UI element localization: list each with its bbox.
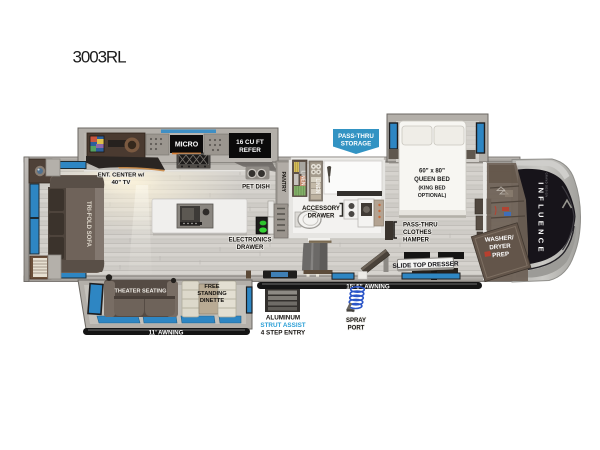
svg-text:DINETTE: DINETTE bbox=[200, 298, 225, 304]
svg-text:STORAGE: STORAGE bbox=[341, 140, 371, 147]
svg-text:PORT: PORT bbox=[348, 326, 365, 332]
svg-text:STANDING: STANDING bbox=[197, 291, 227, 297]
svg-text:SPRAY: SPRAY bbox=[346, 318, 366, 324]
svg-text:PET DISH: PET DISH bbox=[242, 185, 270, 191]
svg-text:HAMPER: HAMPER bbox=[403, 238, 430, 244]
svg-text:ENT. CENTER w/: ENT. CENTER w/ bbox=[98, 173, 145, 179]
svg-text:STRUT ASSIST: STRUT ASSIST bbox=[260, 322, 305, 329]
svg-text:3003RL: 3003RL bbox=[73, 48, 127, 67]
svg-text:ALUMINUM: ALUMINUM bbox=[266, 315, 300, 322]
svg-text:THEATER SEATING: THEATER SEATING bbox=[114, 289, 166, 295]
svg-text:DRAWER: DRAWER bbox=[237, 245, 264, 251]
svg-text:DRAWER: DRAWER bbox=[308, 214, 335, 220]
svg-text:GRAND DESIGN: GRAND DESIGN bbox=[545, 173, 549, 198]
svg-text:PREP: PREP bbox=[492, 251, 509, 259]
svg-text:(KING BED: (KING BED bbox=[418, 186, 445, 192]
svg-text:INFLUENCE: INFLUENCE bbox=[537, 182, 546, 255]
svg-text:40” TV: 40” TV bbox=[112, 180, 131, 186]
svg-text:4 STEP ENTRY: 4 STEP ENTRY bbox=[261, 330, 306, 337]
svg-text:60” x 80”: 60” x 80” bbox=[419, 169, 445, 175]
svg-text:FREE: FREE bbox=[204, 284, 219, 290]
svg-text:OPTIONAL): OPTIONAL) bbox=[418, 193, 447, 199]
svg-text:PASS-THRU: PASS-THRU bbox=[403, 223, 438, 229]
svg-text:LINEN: LINEN bbox=[300, 171, 306, 186]
svg-text:CLOTHES: CLOTHES bbox=[403, 230, 432, 236]
svg-text:ELECTRONICS: ELECTRONICS bbox=[228, 238, 271, 244]
svg-text:PASS-THRU: PASS-THRU bbox=[338, 133, 374, 140]
svg-text:QUEEN BED: QUEEN BED bbox=[414, 177, 450, 183]
svg-text:REFER: REFER bbox=[239, 147, 261, 154]
svg-text:11’ AWNING: 11’ AWNING bbox=[149, 329, 184, 336]
svg-text:TRI-FOLD SOFA: TRI-FOLD SOFA bbox=[85, 201, 91, 248]
svg-text:PANTRY: PANTRY bbox=[280, 172, 286, 193]
svg-text:16 CU FT: 16 CU FT bbox=[236, 139, 264, 146]
svg-text:LINEN: LINEN bbox=[314, 179, 320, 194]
svg-text:ACCESSORY: ACCESSORY bbox=[302, 206, 340, 212]
svg-text:MICRO: MICRO bbox=[175, 142, 199, 149]
